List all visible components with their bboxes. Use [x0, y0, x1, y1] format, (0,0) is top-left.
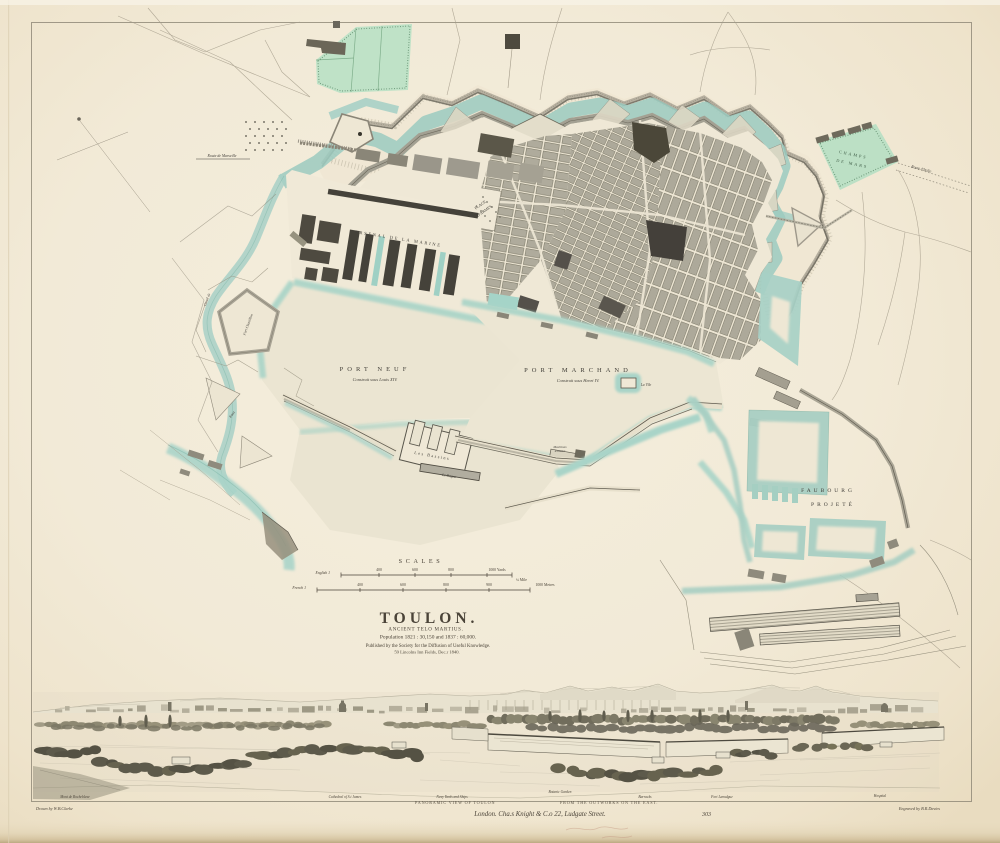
svg-text:303: 303 — [701, 812, 711, 818]
svg-text:French 1: French 1 — [291, 586, 306, 590]
svg-text:Fort Lamalgue: Fort Lamalgue — [710, 795, 733, 799]
svg-text:900: 900 — [486, 583, 492, 587]
svg-text:La Vîle: La Vîle — [640, 383, 652, 387]
svg-text:Cathedral of S.t James: Cathedral of S.t James — [329, 795, 362, 799]
svg-text:400: 400 — [357, 583, 363, 587]
svg-text:English 1: English 1 — [315, 571, 331, 575]
svg-text:Drawn by W.B.Clarke: Drawn by W.B.Clarke — [35, 806, 73, 811]
svg-text:ANCIENT TELO MARTIUS.: ANCIENT TELO MARTIUS. — [388, 628, 463, 633]
svg-text:TOULON.: TOULON. — [380, 610, 479, 627]
svg-text:Hospital: Hospital — [873, 794, 886, 798]
svg-text:¼ Mile: ¼ Mile — [516, 578, 527, 582]
svg-text:Population 1821 : 30,150 and: Population 1821 : 30,150 and 1837 : 60,0… — [380, 635, 476, 641]
svg-text:Route de Marseille: Route de Marseille — [207, 154, 237, 158]
svg-text:PORT MARCHAND: PORT MARCHAND — [524, 367, 632, 374]
svg-text:FAUBOURG: FAUBOURG — [801, 488, 855, 494]
svg-text:London. Cha.s Knight & C.o 22,: London. Cha.s Knight & C.o 22, Ludgate S… — [473, 811, 606, 818]
svg-text:SCALES: SCALES — [399, 558, 444, 565]
svg-text:800: 800 — [443, 583, 449, 587]
svg-text:Published by the Society for t: Published by the Society for the Diffusi… — [366, 644, 491, 649]
svg-text:PORT NEUF: PORT NEUF — [340, 366, 411, 373]
svg-text:FROM THE OUTWORKS ON THE EAST.: FROM THE OUTWORKS ON THE EAST. — [560, 800, 658, 805]
svg-text:PROJETÉ: PROJETÉ — [811, 500, 855, 508]
svg-text:Construit sous Henri IV.: Construit sous Henri IV. — [557, 378, 600, 383]
svg-text:Navy Yards and Ships: Navy Yards and Ships — [435, 795, 468, 799]
svg-text:PANORAMIC VIEW OF TOULON: PANORAMIC VIEW OF TOULON — [415, 800, 495, 805]
svg-text:400: 400 — [376, 568, 382, 572]
svg-text:800: 800 — [448, 568, 454, 572]
svg-text:1000 Metres: 1000 Metres — [535, 583, 555, 587]
svg-text:à mater: à mater — [555, 449, 566, 453]
svg-text:600: 600 — [412, 568, 418, 572]
svg-text:600: 600 — [400, 583, 406, 587]
svg-text:Mont de Rocheblave: Mont de Rocheblave — [59, 795, 90, 799]
svg-text:Botanic Garden: Botanic Garden — [549, 790, 572, 794]
svg-text:1000 Yards: 1000 Yards — [488, 568, 506, 572]
svg-text:Construit sous Louis XIV.: Construit sous Louis XIV. — [353, 377, 399, 382]
svg-text:Barracks: Barracks — [638, 795, 652, 799]
svg-text:Engraved by B.R.Davies: Engraved by B.R.Davies — [898, 806, 941, 811]
